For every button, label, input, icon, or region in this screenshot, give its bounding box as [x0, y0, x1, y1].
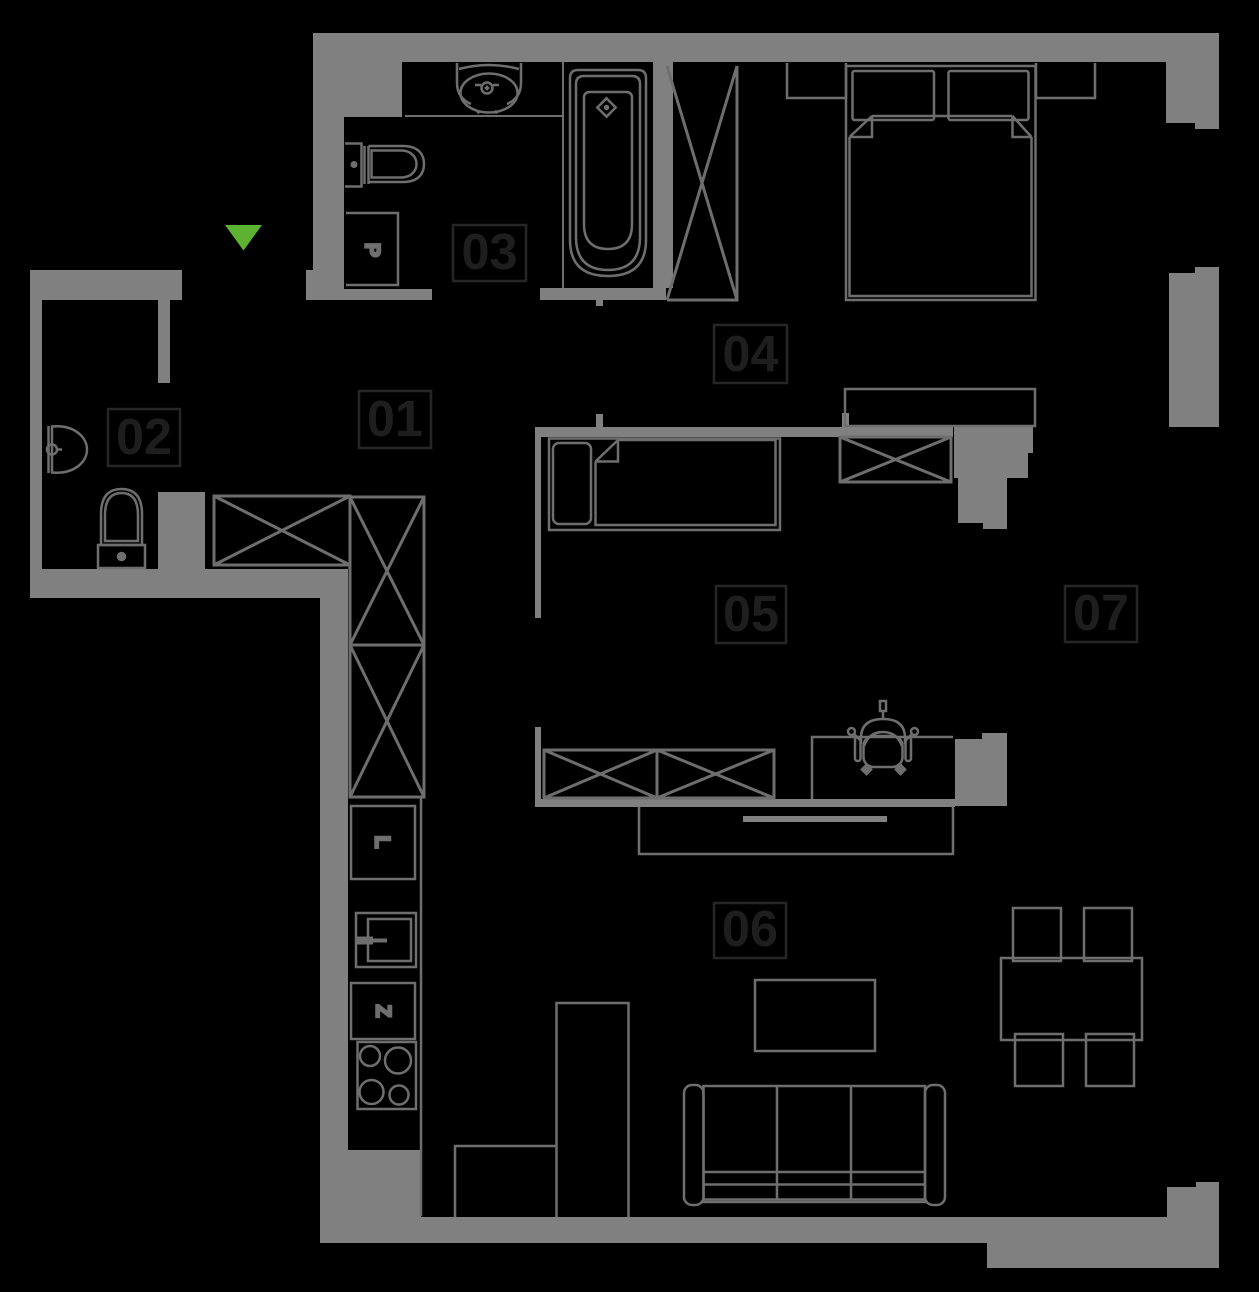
svg-text:P: P: [361, 243, 384, 257]
svg-text:07: 07: [1073, 584, 1129, 641]
svg-text:Z: Z: [372, 1005, 395, 1018]
svg-text:05: 05: [723, 585, 779, 642]
svg-text:04: 04: [723, 325, 780, 382]
svg-text:L: L: [371, 836, 394, 849]
svg-text:02: 02: [116, 408, 172, 465]
svg-text:03: 03: [462, 223, 518, 280]
svg-text:06: 06: [722, 900, 778, 957]
svg-text:01: 01: [367, 390, 423, 447]
